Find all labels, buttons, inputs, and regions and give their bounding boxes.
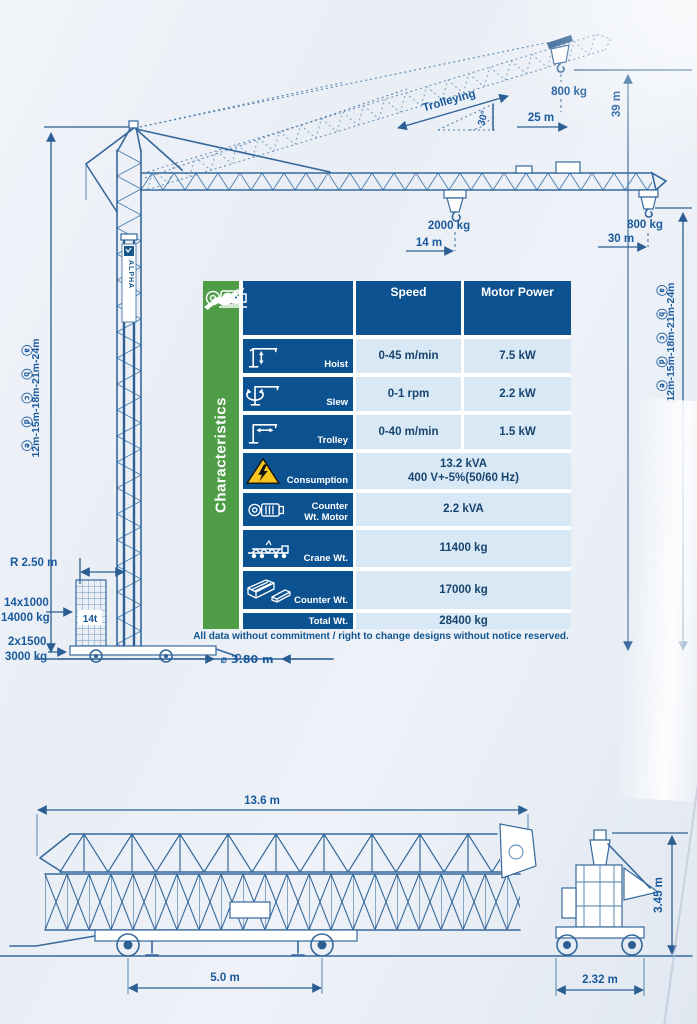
slew-speed: 0-1 rpm — [356, 377, 461, 411]
transport-length-label: 13.6 m — [244, 795, 280, 807]
consumption-label-cell: Consumption — [243, 453, 353, 489]
brand-label: ALPHA — [127, 260, 134, 289]
counter-wt-value: 17000 kg — [356, 571, 571, 609]
transport-height-label: 3.45 m — [653, 877, 665, 913]
raised-height-label: 39 m — [611, 91, 623, 117]
header-blank-cell — [243, 281, 353, 335]
transport-drawings: 13.6 m 5.0 m — [0, 760, 697, 1024]
row-slew: Slew 0-1 rpm 2.2 kW — [243, 377, 571, 411]
characteristics-title: Characteristics — [213, 397, 230, 513]
wheelbase-label: 5.0 m — [210, 972, 239, 984]
transport-rear-view — [556, 830, 658, 955]
motor-icon — [203, 285, 249, 311]
trolley-label-cell: Trolley — [243, 415, 353, 449]
row-counter-wt-motor: Counter Wt. Motor 2.2 kVA — [243, 493, 571, 526]
raised-jib-dotted — [143, 31, 614, 190]
counter-wt-label: Counter Wt. — [294, 596, 348, 607]
slew-radius-label: R 2.50 m — [10, 557, 57, 569]
spec-sheet-page: Trolleying 30° 25 m 800 kg 39 m ⓐ ⓑ ⓒ ⓓ … — [0, 0, 697, 1024]
ballast-block-label: 14t — [83, 614, 98, 625]
base-ballast-weight: 3000 kg — [5, 651, 47, 663]
slew-label: Slew — [326, 398, 348, 409]
counter-wt-label-cell: Counter Wt. — [243, 571, 353, 609]
electric-warning-icon — [246, 456, 280, 486]
tip-hook-load-label: 800 kg — [627, 219, 663, 231]
motor-power-header-label: Motor Power — [481, 285, 554, 299]
hoist-label: Hoist — [324, 360, 348, 371]
characteristics-grid: Speed Motor Power — [243, 281, 571, 629]
total-wt-label: Total Wt. — [309, 617, 348, 628]
crane-wt-label-cell: Crane Wt. — [243, 530, 353, 567]
counter-wt-motor-label-line1: Counter — [312, 501, 348, 512]
counterweight-blocks-icon — [246, 576, 292, 604]
brand-plate: ALPHA — [122, 244, 136, 322]
hoist-power: 7.5 kW — [464, 339, 571, 373]
slew-label-cell: Slew — [243, 377, 353, 411]
counter-wt-motor-label: Counter Wt. Motor — [304, 502, 348, 524]
row-hoist: Hoist 0-45 m/min 7.5 kW — [243, 339, 571, 373]
trolley-label: Trolley — [317, 436, 348, 447]
characteristics-sideband: Characteristics — [203, 281, 239, 629]
transport-width-label: 2.32 m — [582, 974, 618, 986]
crane-wt-label: Crane Wt. — [304, 554, 348, 565]
counter-wt-motor-label-cell: Counter Wt. Motor — [243, 493, 353, 526]
raised-hook-load-label: 800 kg — [551, 86, 587, 98]
table-header-row: Speed Motor Power — [243, 281, 571, 335]
mid-hook-radius-label: 14 m — [416, 237, 442, 249]
speed-header-label: Speed — [390, 285, 426, 299]
consumption-label: Consumption — [287, 476, 348, 487]
base-diameter-label: ⌀ 3.80 m — [221, 653, 274, 666]
mast — [117, 150, 141, 652]
tower-ballast-weight: 14000 kg — [1, 612, 50, 624]
row-counter-wt: Counter Wt. 17000 kg — [243, 571, 571, 609]
raised-tie-1 — [135, 82, 345, 128]
header-speed: Speed — [356, 281, 461, 335]
hoist-crane-icon — [246, 341, 282, 371]
trolley-crane-icon — [246, 417, 282, 447]
mast-heights-label: 12m-15m-18m-21m-24m — [30, 338, 42, 457]
trolley-speed: 0-40 m/min — [356, 415, 461, 449]
raised-radius-label: 25 m — [528, 112, 554, 124]
counter-wt-motor-value: 2.2 kVA — [356, 493, 571, 526]
mid-hook-load-label: 2000 kg — [428, 220, 470, 232]
row-trolley: Trolley 0-40 m/min 1.5 kW — [243, 415, 571, 449]
disclaimer-footnote: All data without commitment / right to c… — [183, 631, 579, 642]
header-motor-power: Motor Power — [464, 281, 571, 335]
trolley-power: 1.5 kW — [464, 415, 571, 449]
total-wt-value: 28400 kg — [356, 613, 571, 629]
total-wt-label-cell: Total Wt. — [243, 613, 353, 629]
crane-transport-icon — [246, 536, 292, 562]
crane-wt-value: 11400 kg — [356, 530, 571, 567]
hoist-label-cell: Hoist — [243, 339, 353, 373]
base-ballast-count: 2x1500 — [8, 636, 46, 648]
row-crane-wt: Crane Wt. 11400 kg — [243, 530, 571, 567]
row-consumption: Consumption 13.2 kVA 400 V+-5%(50/60 Hz) — [243, 453, 571, 489]
consumption-value: 13.2 kVA 400 V+-5%(50/60 Hz) — [356, 453, 571, 489]
counter-wt-motor-label-line2: Wt. Motor — [304, 512, 348, 523]
angle-label: 30° — [476, 110, 491, 127]
counter-wt-motor-icon — [246, 498, 286, 522]
slew-power: 2.2 kW — [464, 377, 571, 411]
slew-crane-icon — [246, 379, 282, 409]
tip-hook-radius-label: 30 m — [608, 233, 634, 245]
tower-ballast-count: 14x1000 — [4, 597, 49, 609]
characteristics-panel: Characteristics Speed Motor Power — [203, 281, 571, 629]
row-total-wt: Total Wt. 28400 kg — [243, 613, 571, 629]
consumption-voltage: 400 V+-5%(50/60 Hz) — [408, 471, 519, 485]
consumption-kva: 13.2 kVA — [408, 457, 519, 471]
counterweight-block: 14t — [76, 580, 106, 646]
raised-hook — [547, 35, 573, 112]
hoist-speed: 0-45 m/min — [356, 339, 461, 373]
hook-heights-label: 12m-15m-18m-21m-24m — [665, 282, 677, 401]
